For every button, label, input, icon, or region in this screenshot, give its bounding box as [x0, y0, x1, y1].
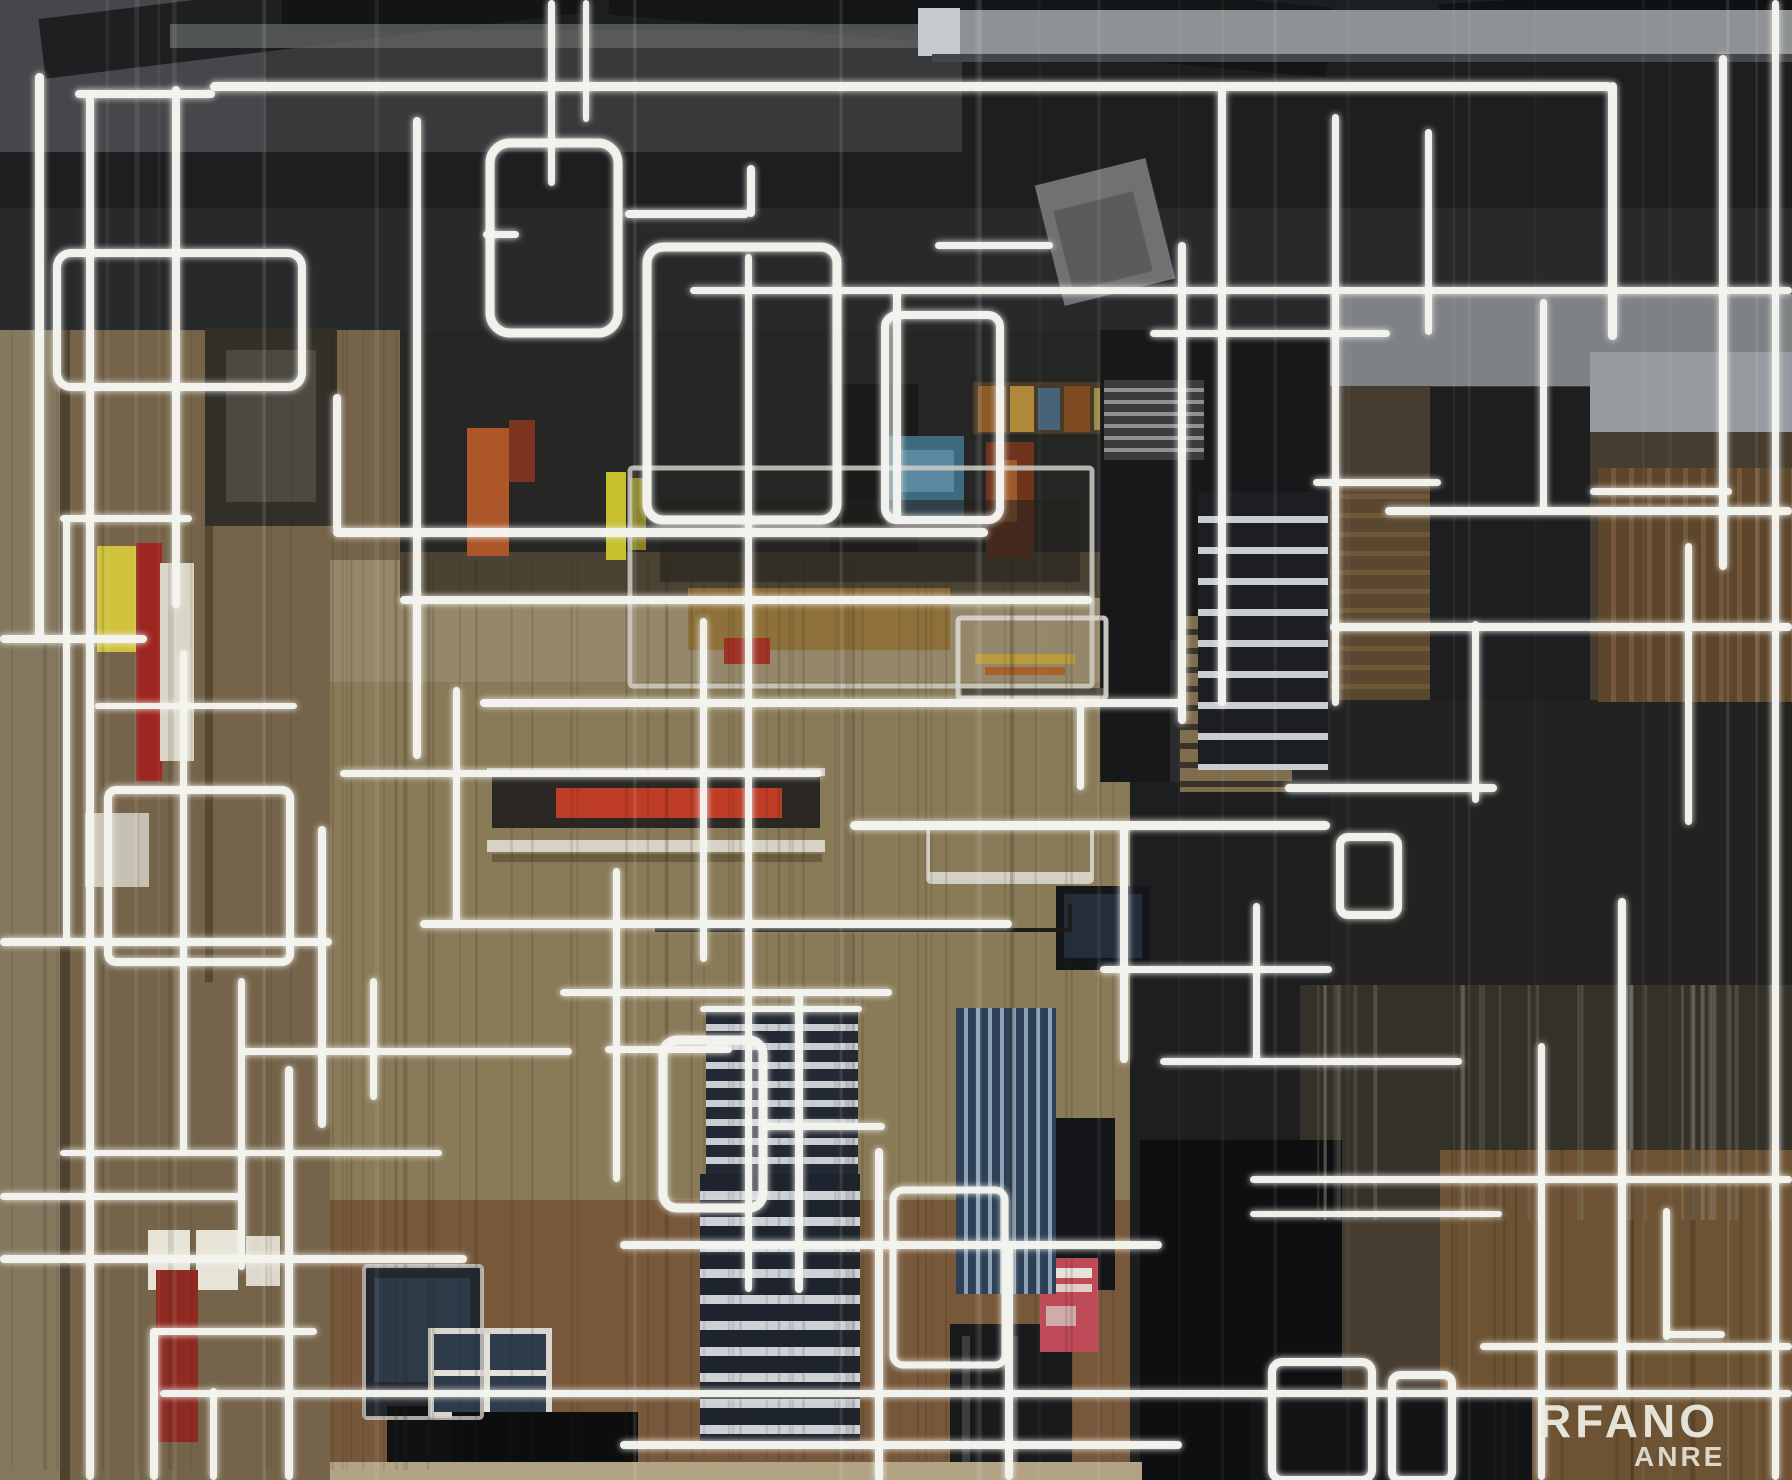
neon-tube-segment [150, 1328, 317, 1335]
stripe-band [1104, 448, 1204, 452]
neon-tube-segment [60, 515, 192, 522]
reflection-streak [625, 560, 627, 1460]
stripe-band [1330, 551, 1430, 556]
scene-block [1064, 894, 1142, 958]
storefront-signage-line2: ANRE [1634, 1441, 1725, 1472]
stripe-band [1611, 468, 1616, 702]
stripe-band [1198, 640, 1328, 647]
reflection-streak [1503, 1150, 1505, 1480]
scene-block [1064, 386, 1090, 432]
neon-tube-segment [1590, 488, 1732, 495]
reflection-streak [346, 330, 348, 1470]
scene-block [487, 840, 825, 852]
scene-block [1590, 352, 1792, 432]
neon-tube-segment [75, 90, 215, 98]
neon-tube-segment [1618, 898, 1626, 1395]
reflection-streak [1499, 985, 1501, 1220]
neon-tube-segment [0, 938, 332, 946]
neon-tube-segment [333, 528, 988, 537]
reflection-streak [1323, 985, 1326, 1220]
neon-tube-segment [1332, 114, 1339, 706]
neon-tube-segment [700, 1006, 862, 1012]
stripe-band [1104, 400, 1204, 404]
scene-block [1010, 386, 1034, 432]
reflection-streak [931, 560, 933, 1460]
reflection-streak [1065, 560, 1068, 1460]
neon-tube-segment [1425, 129, 1432, 335]
reflection-streak [1493, 1150, 1496, 1480]
neon-tube-segment [1772, 0, 1779, 1480]
neon-tube-segment [1218, 84, 1226, 706]
reflection-streak [1577, 985, 1579, 1220]
scene-canvas: RFANO ANRE [0, 0, 1792, 1480]
neon-tube-segment [1253, 903, 1260, 1065]
neon-tube-segment [240, 1048, 572, 1055]
reflection-streak [1462, 985, 1464, 1220]
neon-tube-segment [150, 1330, 158, 1480]
stripe-band [1198, 578, 1328, 585]
neon-tube-segment [285, 1066, 293, 1480]
reflection-streak [1535, 0, 1537, 1480]
stripe-band [1330, 570, 1430, 575]
neon-tube-segment [480, 699, 1182, 707]
reflection-streak [576, 560, 579, 1460]
neon-tube-segment [700, 618, 707, 962]
scene-block [205, 520, 213, 982]
reflection-streak [1035, 560, 1037, 1460]
neon-tube-segment [1685, 543, 1692, 825]
scene-block [932, 54, 1792, 62]
reflection-streak [432, 560, 435, 1460]
reflection-streak [168, 330, 171, 1470]
stripe-band [988, 1008, 992, 1294]
stripe-band [1198, 702, 1328, 709]
reflection-streak [427, 330, 429, 1470]
scene-block [985, 667, 1065, 675]
stripe-band [1198, 516, 1328, 523]
neon-tube-segment [1385, 507, 1792, 515]
stripe-band [1104, 424, 1204, 428]
reflection-streak [1333, 985, 1337, 1220]
neon-tube-segment [625, 210, 749, 218]
reflection-streak [510, 560, 513, 1460]
reflection-streak [665, 560, 668, 1460]
neon-tube-segment [95, 703, 297, 709]
stripe-band [1048, 1008, 1052, 1294]
neon-tube-segment [35, 73, 44, 638]
reflection-streak [1178, 0, 1180, 1480]
reflection-streak [1038, 0, 1041, 1480]
stripe-band [1330, 589, 1430, 594]
neon-tube-segment [210, 1388, 217, 1480]
neon-tube-segment [747, 165, 755, 217]
stripe-band [1629, 468, 1634, 702]
reflection-streak [1740, 1150, 1743, 1480]
stripe-band [1330, 532, 1430, 537]
neon-tube-segment [453, 687, 460, 923]
scene-block [918, 8, 960, 56]
reflection-streak [342, 330, 344, 1470]
neon-tube-segment [172, 86, 180, 608]
stripe-band [1198, 733, 1328, 740]
neon-tube-segment [620, 1441, 1182, 1449]
reflection-streak [350, 560, 352, 1460]
scene-block [1038, 388, 1060, 430]
scene-block [492, 854, 822, 862]
neon-tube-segment [1250, 1176, 1792, 1183]
neon-tube-segment [210, 82, 1612, 91]
reflection-streak [395, 330, 398, 1470]
stripe-band [1647, 468, 1652, 702]
neon-tube-segment [1313, 479, 1441, 486]
reflection-streak [56, 330, 59, 1470]
neon-tube-segment [0, 1193, 242, 1200]
neon-tube-segment [763, 1123, 885, 1130]
reflection-streak [362, 330, 364, 1470]
reflection-streak [383, 330, 385, 1470]
neon-tube-segment [420, 920, 1012, 928]
reflection-streak [1581, 985, 1584, 1220]
neon-tube-segment [690, 287, 1792, 294]
reflection-streak [403, 330, 405, 1470]
neon-tube-segment [238, 978, 245, 1270]
scene-block [975, 654, 1075, 664]
neon-tube-segment [583, 0, 589, 122]
neon-tube-segment [63, 515, 70, 942]
neon-tube-segment [86, 92, 94, 1480]
reflection-streak [1468, 0, 1470, 1480]
scene-block [330, 1462, 1142, 1480]
reflection-streak [1346, 0, 1350, 1480]
neon-tube-segment [0, 1255, 467, 1263]
neon-tube-segment [370, 978, 377, 1100]
reflection-streak [633, 0, 636, 1480]
storefront-signage-line1: RFANO [1538, 1395, 1719, 1447]
reflection-streak [1515, 1150, 1518, 1480]
reflection-streak [1097, 0, 1101, 1480]
reflection-streak [1642, 0, 1645, 1480]
scene-block [484, 1334, 490, 1412]
stripe-band [1330, 665, 1430, 670]
scene-block [660, 500, 1080, 582]
reflection-streak [190, 330, 192, 1470]
stripe-band [1198, 547, 1328, 554]
reflection-streak [1337, 985, 1341, 1220]
reflection-streak [81, 330, 83, 1470]
reflection-streak [917, 560, 919, 1460]
reflection-streak [1681, 985, 1684, 1220]
reflection-streak [1460, 985, 1462, 1220]
stripe-band [1198, 764, 1328, 770]
neon-tube-segment [875, 1148, 883, 1480]
reflection-streak [1453, 0, 1456, 1480]
neon-tube-segment [560, 989, 892, 996]
neon-tube-segment [1077, 698, 1084, 790]
reflection-streak [1481, 985, 1485, 1220]
neon-tube-segment [1480, 1343, 1792, 1350]
scene-block [896, 450, 954, 492]
neon-tube-segment [340, 770, 822, 777]
reflection-streak [647, 560, 649, 1460]
reflection-streak [1711, 985, 1714, 1220]
stripe-band [1024, 1008, 1028, 1294]
neon-tube-segment [1472, 621, 1479, 803]
neon-tube-segment [1120, 821, 1128, 1063]
reflection-streak [1528, 985, 1531, 1220]
reflection-streak [945, 560, 947, 1460]
stripe-band [1330, 608, 1430, 613]
reflection-streak [925, 560, 927, 1460]
reflection-streak [975, 0, 979, 1480]
neon-tube-segment [548, 0, 555, 186]
stripe-band [1330, 646, 1430, 651]
stripe-band [1104, 436, 1204, 440]
reflection-streak [475, 560, 478, 1460]
reflection-streak [1112, 560, 1114, 1460]
neon-tube-segment [1250, 1211, 1502, 1217]
stripe-band [1198, 671, 1328, 678]
stripe-band [1330, 494, 1430, 499]
stripe-band [1104, 412, 1204, 416]
striped-object [1598, 468, 1792, 702]
reflection-streak [11, 330, 13, 1470]
neon-tube-segment [893, 288, 901, 520]
reflection-streak [1755, 0, 1757, 1480]
scene-block [962, 688, 1104, 696]
reflection-streak [690, 560, 693, 1460]
reflection-streak [1070, 560, 1072, 1460]
reflection-streak [1762, 1150, 1765, 1480]
reflection-streak [898, 560, 900, 1460]
neon-tube-segment [1663, 1331, 1725, 1338]
neon-tube-segment [1608, 82, 1617, 340]
neon-tube-segment [400, 596, 1092, 604]
neon-tube-segment [1330, 623, 1792, 631]
reflection-streak [1735, 985, 1739, 1220]
reflection-streak [1317, 985, 1319, 1220]
neon-tube-segment [413, 117, 421, 759]
neon-tube-segment [850, 821, 1330, 830]
reflection-streak [1700, 985, 1703, 1220]
reflection-streak [102, 330, 105, 1470]
neon-tube-segment [318, 826, 326, 1128]
scene-block [509, 420, 535, 482]
scene-block [930, 10, 1792, 54]
neon-tube-segment [0, 635, 147, 643]
reflection-streak [405, 330, 408, 1470]
scene-block [0, 330, 62, 1480]
reflection-streak [1273, 0, 1277, 1480]
stripe-band [1330, 684, 1430, 689]
reflection-streak [1479, 985, 1481, 1220]
neon-tube-segment [1160, 1058, 1462, 1065]
neon-tube-segment [613, 868, 620, 1182]
stripe-band [1198, 609, 1328, 616]
scene-block [606, 472, 626, 560]
reflection-streak [531, 560, 533, 1460]
stripe-band [1701, 468, 1706, 702]
reflection-streak [570, 560, 573, 1460]
stripe-band [964, 1008, 968, 1294]
reflection-streak [270, 330, 272, 1470]
reflection-streak [45, 330, 48, 1470]
stripe-band [1104, 388, 1204, 392]
reflection-streak [1373, 985, 1377, 1220]
neon-tube-segment [60, 1150, 442, 1156]
neon-tube-segment [1540, 299, 1547, 511]
reflection-streak [840, 0, 843, 1480]
neon-tube-segment [1285, 784, 1497, 792]
stripe-band [1737, 468, 1742, 702]
striped-object [1198, 492, 1328, 770]
reflection-streak [1354, 985, 1358, 1220]
storefront-photo: RFANO ANRE [0, 0, 1792, 1480]
neon-tube-segment [1663, 1208, 1670, 1340]
neon-tube-segment [333, 394, 341, 532]
neon-tube-segment [180, 650, 187, 1152]
neon-tube-segment [1178, 242, 1186, 724]
neon-tube-segment [1100, 966, 1332, 973]
neon-tube-segment [935, 242, 1053, 249]
